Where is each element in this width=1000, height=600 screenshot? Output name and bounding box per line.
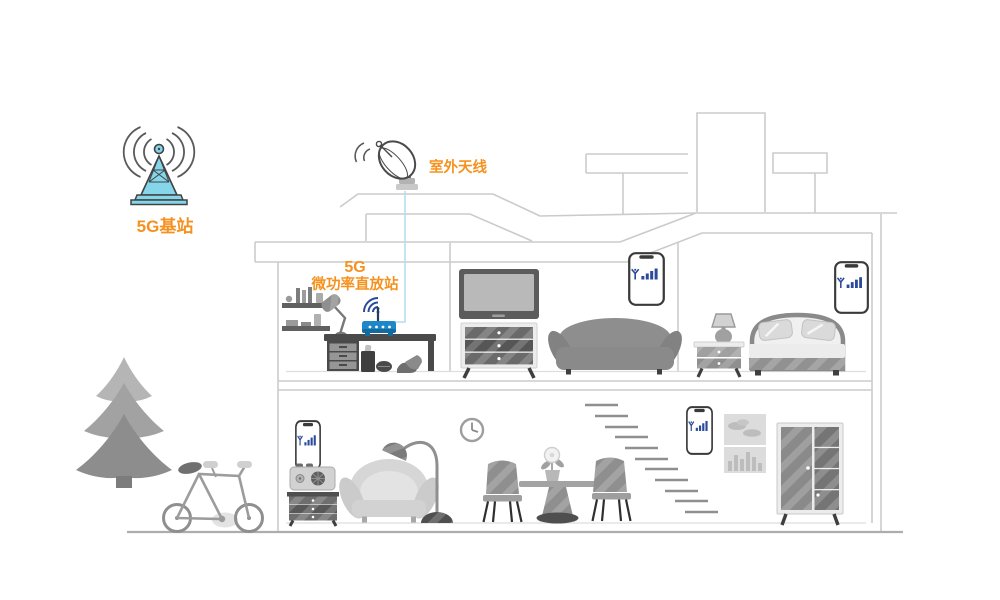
tv-cabinet: [461, 323, 537, 378]
satellite-dish-icon: [355, 134, 422, 190]
antenna-to-repeater-cable: [394, 191, 405, 322]
smartphone-living-room: [629, 253, 664, 305]
smartphone-ground-left: [296, 421, 320, 469]
bed: [749, 315, 845, 376]
tv: [459, 269, 539, 319]
repeater-label-line2: 微功率直放站: [278, 277, 432, 294]
wall-picture: [724, 414, 766, 473]
outdoor-antenna-label: 室外天线: [429, 160, 487, 177]
smartphone-bedroom: [835, 262, 868, 313]
floor-slab: [278, 381, 872, 390]
table-lamp: [712, 314, 735, 344]
potted-plant: [540, 448, 566, 482]
dining-table: [519, 481, 596, 524]
wardrobe: [777, 423, 843, 525]
dining-chair-left: [483, 461, 522, 523]
base-station-label: 5G基站: [120, 217, 210, 237]
ball: [376, 361, 392, 372]
armchair: [334, 459, 444, 523]
house-diagram: [0, 0, 1000, 600]
router-icon: [362, 307, 396, 336]
radio-cabinet: [287, 492, 339, 526]
chimney: [697, 113, 765, 212]
bicycle: [164, 460, 263, 531]
repeater-label-line1: 5G: [278, 259, 432, 277]
shoes: [397, 355, 422, 373]
radio-waves-icon: [355, 143, 370, 162]
sofa: [543, 318, 687, 375]
wall-clock: [461, 419, 483, 441]
cell-tower-icon: [124, 127, 195, 205]
waste-bin: [361, 345, 375, 372]
diagram-canvas: 5G基站 室外天线 5G 微功率直放站: [0, 0, 1000, 600]
pine-tree: [76, 357, 172, 488]
dining-chair-right: [592, 458, 631, 522]
smartphone-ground-right: [687, 407, 712, 454]
repeater-label: 5G 微功率直放站: [278, 259, 432, 294]
radio: [290, 464, 335, 491]
